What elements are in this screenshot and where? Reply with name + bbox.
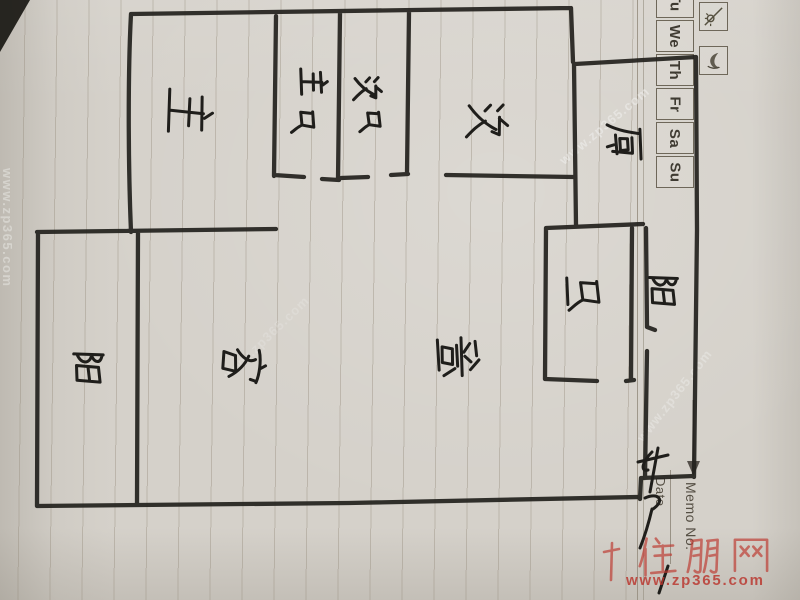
master-bathroom-glyph	[300, 69, 328, 95]
kitchen-glyph	[606, 125, 642, 159]
master-bedroom-glyph	[165, 89, 214, 135]
floor-plan-drawing	[0, 0, 800, 600]
living-room-glyph	[220, 346, 267, 384]
second-bathroom-glyph	[360, 112, 380, 132]
site-url-watermark: www.zp365.com	[626, 572, 765, 589]
bathroom-glyph	[567, 278, 599, 310]
memo-pad-photo: www.zp365.com www.zp365.com www.zp365.co…	[0, 0, 800, 600]
master-bathroom-glyph	[292, 111, 315, 133]
balcony-right-glyph	[649, 278, 678, 305]
dining-room-glyph	[435, 336, 481, 378]
second-bathroom-glyph	[354, 76, 383, 102]
balcony-left-glyph	[73, 354, 103, 382]
second-bedroom-glyph	[466, 102, 509, 140]
